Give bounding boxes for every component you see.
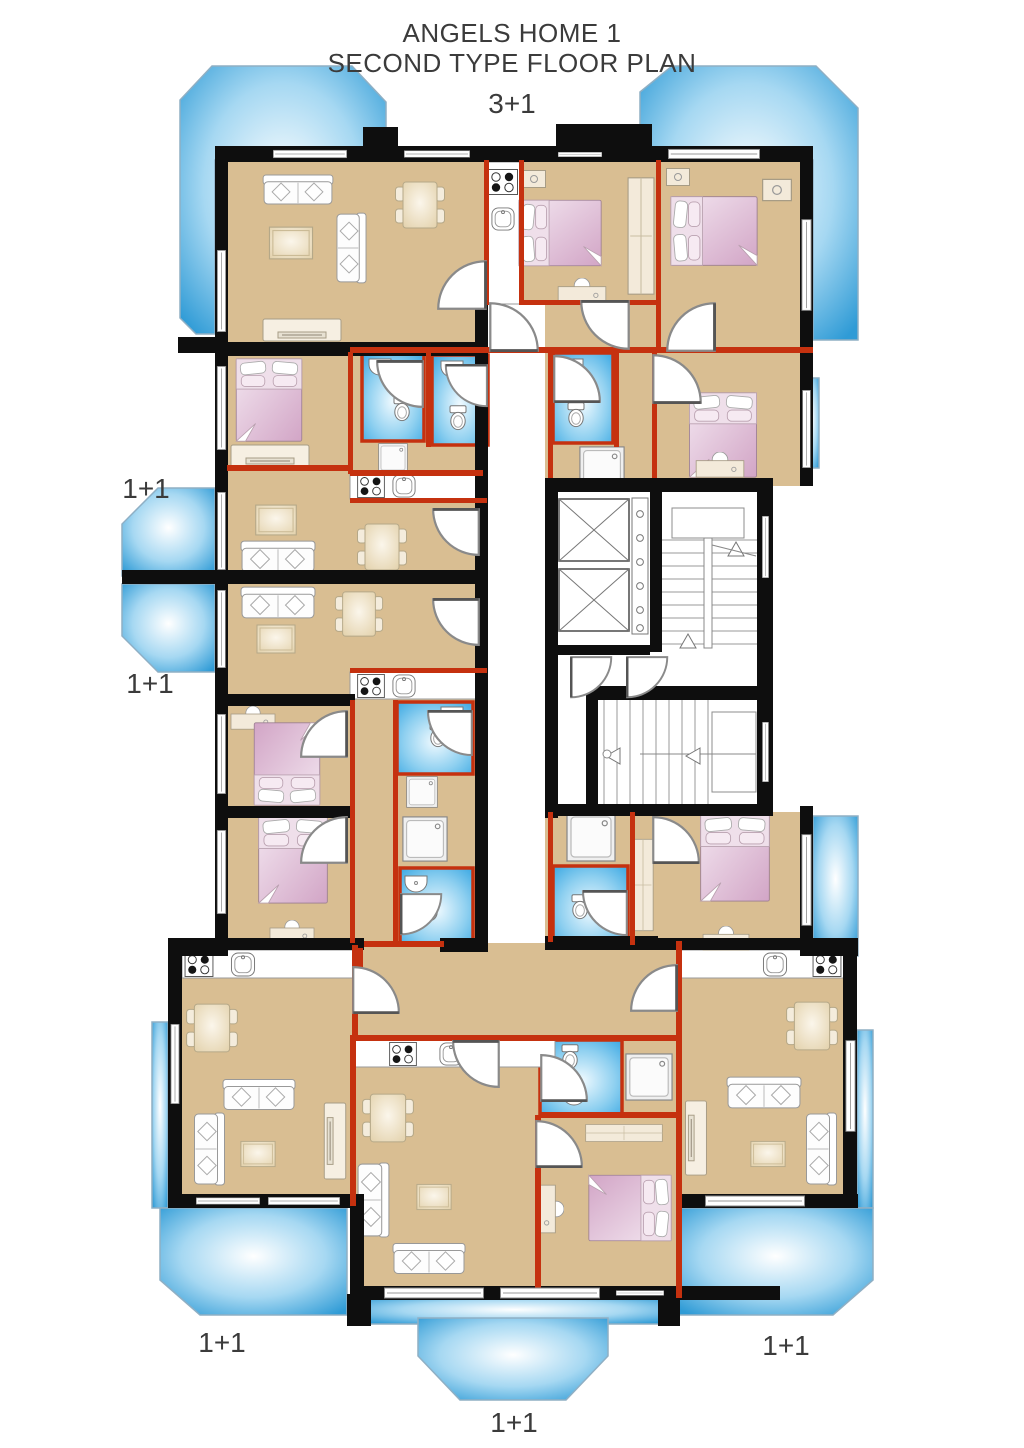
window-icon [501, 1288, 600, 1298]
dining-table-icon [396, 182, 445, 228]
shower-tray-icon [407, 777, 438, 808]
shower-tray-icon [567, 813, 615, 861]
dining-table-icon [358, 524, 407, 570]
bed-icon [236, 359, 302, 441]
window-icon [846, 1041, 855, 1132]
kitchen-sink-icon [492, 208, 514, 230]
unit-label-bottom-left: 1+1 [198, 1327, 246, 1358]
balcony-left-lower [122, 584, 215, 672]
window-icon [385, 1288, 484, 1298]
staircase-upper [662, 492, 758, 654]
balcony-bottom-left [160, 1208, 347, 1315]
wardrobe-icon [633, 839, 653, 930]
sofa-icon [807, 1113, 837, 1185]
window-icon [616, 1291, 664, 1296]
window-icon [218, 590, 226, 667]
dining-table-icon [187, 1004, 238, 1052]
nightstand-icon [523, 171, 546, 188]
tv-unit-icon [231, 445, 309, 467]
tv-unit-icon [263, 319, 341, 341]
sofa-icon [241, 587, 315, 618]
window-icon [404, 151, 469, 158]
window-icon [217, 250, 225, 331]
coffee-table-icon [257, 625, 295, 653]
nightstand-icon [667, 169, 690, 186]
coffee-table-icon [751, 1141, 785, 1166]
elevator-icon [559, 499, 629, 561]
floor-plan-page: ANGELS HOME 1 SECOND TYPE FLOOR PLAN 3+1… [0, 0, 1024, 1448]
stove-icon [813, 952, 841, 976]
sofa-icon [263, 175, 333, 204]
kitchen-sink-icon [231, 953, 254, 976]
window-icon [803, 390, 811, 467]
plan-title-line1: ANGELS HOME 1 [403, 18, 622, 48]
bed-icon [671, 197, 757, 266]
window-icon [802, 220, 811, 311]
coffee-table-icon [241, 1141, 275, 1166]
unit-label-top: 3+1 [488, 88, 536, 119]
shower-tray-icon [403, 817, 447, 861]
window-icon [668, 149, 759, 158]
window-icon [218, 492, 226, 569]
sofa-icon [393, 1244, 465, 1274]
staircase-lower [598, 700, 758, 804]
stove-icon [489, 170, 518, 195]
toilet-icon [450, 406, 466, 430]
window-icon [217, 830, 225, 913]
shower-tray-icon [626, 1054, 672, 1100]
tv-unit-icon [324, 1103, 345, 1179]
floor-plan-svg: ANGELS HOME 1 SECOND TYPE FLOOR PLAN 3+1… [0, 0, 1024, 1448]
kitchen-sink-icon [763, 953, 786, 976]
bed-icon [519, 200, 601, 266]
shower-tray-icon [379, 444, 408, 473]
sofa-icon [223, 1080, 295, 1110]
balcony-bottom-left-strip [152, 1022, 168, 1208]
window-icon [273, 150, 346, 157]
unit-label-left-upper: 1+1 [122, 473, 170, 504]
window-icon [706, 1196, 805, 1206]
balcony-right-low-strip [813, 816, 858, 956]
window-icon [763, 722, 769, 781]
balcony-bottom-right-strip [857, 1030, 873, 1208]
window-icon [802, 835, 811, 926]
stove-icon [390, 1042, 417, 1065]
nightstand-icon [763, 179, 792, 200]
stove-icon [358, 474, 385, 497]
coffee-table-icon [269, 227, 312, 259]
coffee-table-icon [417, 1184, 451, 1209]
sofa-icon [195, 1113, 225, 1185]
wardrobe-icon [628, 178, 654, 294]
basin-icon [405, 876, 427, 892]
sofa-icon [241, 541, 315, 572]
window-icon [762, 516, 768, 577]
dining-table-icon [787, 1002, 838, 1050]
kitchen-sink-icon [393, 475, 415, 497]
coffee-table-icon [256, 505, 297, 535]
tv-unit-icon [686, 1101, 707, 1175]
stove-icon [185, 952, 213, 976]
window-icon [171, 1024, 179, 1103]
sofa-icon [337, 213, 366, 283]
toilet-icon [568, 403, 584, 427]
window-icon [268, 1197, 339, 1204]
plan-title-line2: SECOND TYPE FLOOR PLAN [328, 48, 697, 78]
window-icon [218, 714, 226, 793]
window-icon [217, 366, 225, 449]
unit-label-bottom-center: 1+1 [490, 1407, 538, 1438]
bed-icon [589, 1175, 671, 1241]
dining-table-icon [363, 1094, 414, 1142]
kitchen-sink-icon [393, 675, 415, 697]
window-icon [196, 1198, 259, 1204]
dining-table-icon [335, 592, 382, 636]
unit-label-left-lower: 1+1 [126, 668, 174, 699]
wardrobe-icon [586, 1124, 663, 1141]
balcony-bottom-center [418, 1318, 608, 1400]
window-icon [558, 152, 602, 156]
sofa-icon [727, 1077, 801, 1108]
elevator-icon [559, 569, 629, 631]
unit-label-bottom-right: 1+1 [762, 1330, 810, 1361]
bed-icon [701, 815, 770, 901]
stove-icon [358, 674, 385, 697]
